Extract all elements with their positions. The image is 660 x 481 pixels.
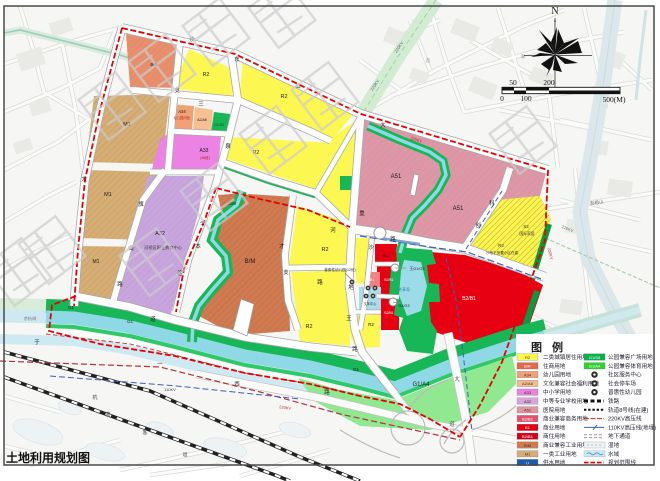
svg-text:s: s [554, 18, 556, 23]
svg-text:R2: R2 [368, 322, 374, 327]
svg-text:支: 支 [283, 268, 289, 276]
svg-text:高: 高 [105, 411, 110, 418]
svg-text:青: 青 [521, 53, 525, 60]
svg-text:0: 0 [500, 94, 504, 103]
svg-text:湿地: 湿地 [608, 441, 620, 449]
svg-text:普惠性幼儿园: 普惠性幼儿园 [608, 388, 642, 396]
svg-text:土地利用规划图: 土地利用规划图 [6, 450, 90, 465]
svg-text:B/M: B/M [524, 443, 531, 448]
svg-text:旗: 旗 [138, 200, 144, 208]
svg-text:地: 地 [348, 283, 354, 291]
svg-text:110KV高压线(地埋): 110KV高压线(地埋) [608, 423, 656, 431]
svg-text:A51: A51 [391, 174, 402, 180]
svg-text:王: 王 [346, 315, 352, 322]
svg-text:M1: M1 [104, 192, 112, 198]
svg-text:沙: 沙 [368, 244, 374, 251]
svg-text:R2: R2 [305, 324, 312, 330]
svg-text:A32: A32 [524, 399, 532, 404]
svg-text:一类工业用地: 一类工业用地 [543, 450, 577, 458]
svg-text:G1: G1 [68, 305, 75, 310]
svg-text:R2: R2 [321, 247, 328, 253]
svg-text:河: 河 [330, 226, 336, 234]
svg-text:G1/G3: G1/G3 [398, 304, 409, 308]
svg-text:A2/A6: A2/A6 [522, 381, 534, 386]
svg-text:中小学用地: 中小学用地 [543, 388, 571, 396]
svg-text:G1/S3: G1/S3 [214, 123, 224, 127]
svg-text:R2: R2 [280, 94, 287, 100]
svg-text:(48班): (48班) [200, 155, 209, 160]
svg-text:R2: R2 [203, 72, 210, 78]
svg-text:路: 路 [317, 278, 323, 286]
svg-text:泉: 泉 [225, 142, 231, 150]
svg-text:医院用地: 医院用地 [543, 406, 566, 414]
svg-text:大: 大 [380, 121, 386, 129]
svg-text:幼儿园(9班): 幼儿园(9班) [174, 115, 191, 120]
svg-text:M1: M1 [525, 452, 531, 457]
svg-text:B14: B14 [382, 253, 390, 258]
svg-text:沙地王安置小区在建: 沙地王安置小区在建 [486, 250, 519, 255]
svg-text:G1/A4: G1/A4 [589, 364, 601, 369]
svg-text:重: 重 [359, 209, 365, 217]
svg-text:B2/B1: B2/B1 [462, 296, 476, 302]
svg-text:图例: 图例 [531, 340, 573, 354]
svg-text:A34: A34 [178, 109, 186, 114]
svg-text:大: 大 [454, 375, 460, 383]
svg-text:商业用地: 商业用地 [543, 423, 566, 431]
svg-text:A33: A33 [200, 148, 209, 154]
svg-text:客: 客 [142, 429, 147, 436]
svg-text:西: 西 [234, 381, 240, 388]
svg-text:社区服务中心: 社区服务中心 [608, 371, 642, 379]
svg-text:二类城镇居住用地: 二类城镇居住用地 [543, 353, 588, 361]
svg-text:普惠性幼儿园(12班): 普惠性幼儿园(12班) [324, 267, 356, 272]
svg-text:商业兼容商务用地: 商业兼容商务用地 [543, 415, 588, 423]
svg-text:幼儿园用地: 幼儿园用地 [543, 371, 571, 379]
svg-text:G1: G1 [127, 319, 134, 324]
svg-text:于: 于 [34, 339, 40, 346]
svg-text:道: 道 [449, 420, 455, 428]
svg-text:B2/B1: B2/B1 [522, 416, 534, 421]
svg-text:A2/A6: A2/A6 [197, 118, 207, 122]
svg-text:A34: A34 [524, 372, 532, 377]
svg-text:共享湾: 共享湾 [398, 287, 410, 292]
svg-text:110KV: 110KV [164, 387, 176, 392]
svg-text:大: 大 [81, 175, 87, 183]
svg-text:公园兼容广场用地: 公园兼容广场用地 [608, 353, 653, 361]
svg-text:本: 本 [195, 242, 201, 250]
svg-text:220KV高压线: 220KV高压线 [608, 415, 642, 423]
svg-text:B2/B1: B2/B1 [384, 278, 393, 282]
svg-text:A51: A51 [453, 206, 464, 212]
svg-text:500(M): 500(M) [603, 95, 626, 104]
svg-text:文化兼容社会福利用地: 文化兼容社会福利用地 [543, 379, 599, 387]
svg-text:运: 运 [182, 451, 187, 458]
svg-text:水域: 水域 [608, 450, 620, 458]
svg-text:余杭闸: 余杭闸 [24, 315, 37, 322]
svg-text:R2: R2 [525, 355, 531, 360]
svg-text:路: 路 [390, 235, 396, 243]
svg-text:200: 200 [543, 78, 555, 87]
svg-text:路: 路 [117, 280, 123, 288]
svg-text:R2: R2 [498, 243, 504, 248]
svg-text:A33: A33 [524, 390, 532, 395]
svg-text:东: 东 [234, 55, 240, 63]
svg-text:G1: G1 [353, 367, 360, 372]
svg-text:道: 道 [150, 315, 156, 323]
svg-text:轨道8号线(在建): 轨道8号线(在建) [608, 406, 649, 414]
svg-text:B2/B1: B2/B1 [384, 311, 393, 315]
svg-text:100: 100 [520, 94, 532, 103]
svg-text:铁路: 铁路 [608, 397, 620, 405]
svg-text:G1/S5: G1/S5 [589, 355, 601, 360]
svg-text:商业兼容工业用地: 商业兼容工业用地 [543, 441, 588, 449]
svg-text:G1/A4: G1/A4 [412, 382, 430, 388]
svg-text:B2/B1: B2/B1 [522, 434, 534, 439]
svg-text:50: 50 [509, 78, 517, 87]
svg-text:社会停车场: 社会停车场 [608, 379, 636, 387]
svg-text:A51: A51 [524, 408, 532, 413]
svg-text:B/M: B/M [245, 259, 256, 265]
svg-text:王G1/G3: 王G1/G3 [410, 267, 425, 271]
svg-text:苕: 苕 [426, 57, 430, 64]
svg-text:三: 三 [198, 101, 204, 108]
svg-text:创: 创 [475, 221, 481, 229]
svg-text:S2: S2 [523, 224, 529, 229]
svg-text:B/R: B/R [524, 364, 531, 369]
svg-text:住商用地: 住商用地 [543, 362, 566, 370]
svg-text:路: 路 [352, 345, 358, 353]
svg-text:科: 科 [489, 199, 495, 207]
svg-text:公园兼容体育用地: 公园兼容体育用地 [608, 362, 653, 370]
svg-text:N: N [551, 6, 558, 17]
svg-text:B1: B1 [525, 425, 531, 430]
svg-text:一: 一 [157, 362, 163, 368]
svg-text:M1: M1 [93, 259, 100, 265]
svg-text:文体中心: 文体中心 [364, 301, 378, 306]
svg-text:B1: B1 [370, 278, 374, 282]
svg-text:中等专业学校用地: 中等专业学校用地 [543, 397, 588, 405]
svg-text:国际家居: 国际家居 [519, 231, 534, 236]
svg-text:商住用地: 商住用地 [543, 432, 566, 440]
svg-text:地下通道: 地下通道 [608, 432, 631, 440]
svg-text:路: 路 [324, 388, 330, 396]
svg-text:才: 才 [279, 242, 285, 250]
svg-text:杭: 杭 [92, 394, 97, 401]
